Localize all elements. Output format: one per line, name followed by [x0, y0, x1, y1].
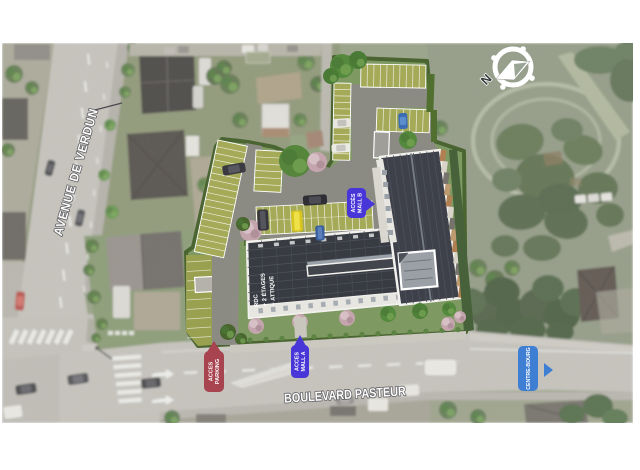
svg-text:ACCÈS: ACCÈS: [349, 193, 357, 212]
svg-text:ACCES: ACCES: [295, 352, 301, 371]
svg-text:RDC: RDC: [253, 293, 260, 307]
svg-text:MALL B: MALL B: [358, 193, 364, 213]
svg-text:CENTRE-BOURG: CENTRE-BOURG: [526, 347, 532, 389]
svg-text:MALL A: MALL A: [301, 351, 307, 371]
svg-text:ACCES: ACCES: [209, 361, 215, 381]
svg-text:PARKING: PARKING: [215, 359, 221, 384]
